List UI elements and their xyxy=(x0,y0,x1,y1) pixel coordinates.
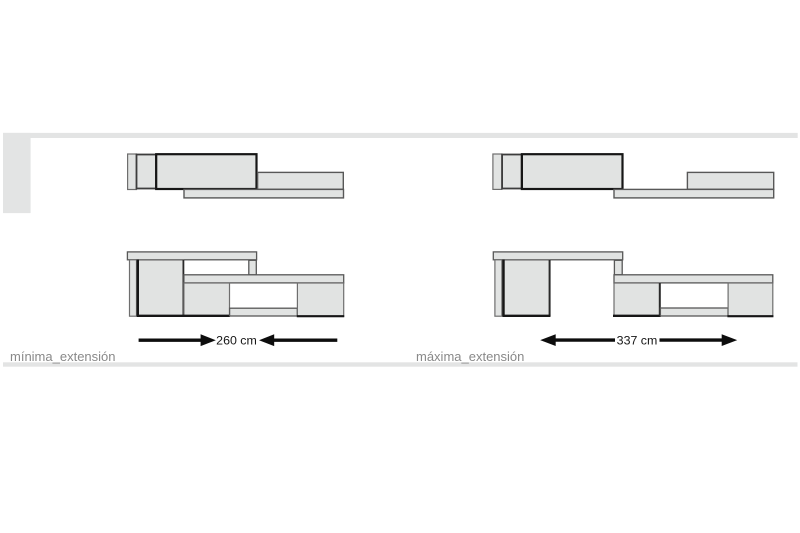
svg-text:máxima_extensión: máxima_extensión xyxy=(416,349,524,364)
svg-text:337 cm: 337 cm xyxy=(617,333,658,347)
svg-text:mínima_extensión: mínima_extensión xyxy=(10,349,116,364)
svg-text:260 cm: 260 cm xyxy=(216,333,257,347)
